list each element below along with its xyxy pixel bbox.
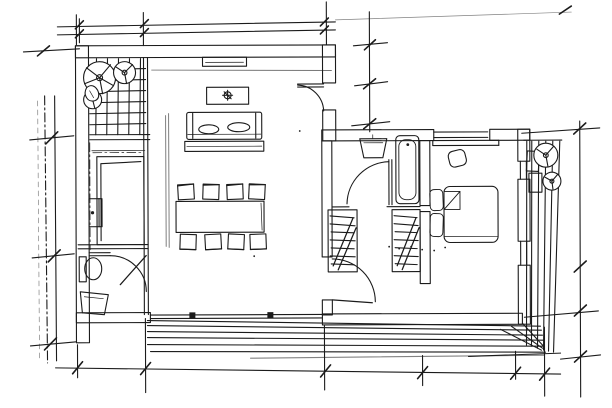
wall-segment [75,45,335,58]
wall-segment [76,313,150,323]
cushion [228,123,250,132]
wall-segment [323,110,336,141]
living-room-door [298,84,324,111]
desk [433,140,499,145]
bathtub [396,136,419,204]
sofa-rug [185,141,264,151]
bed [430,186,499,242]
wc-door [110,256,146,292]
wall-segment [518,265,530,324]
wall-segment [322,45,335,83]
desk-chair [447,149,467,169]
pillow [430,213,444,236]
dimension-lines-left [23,15,80,363]
dining-chairs [178,184,267,250]
kitchen-appliance [89,199,102,227]
dining-chair [205,234,222,250]
wc-sink [80,292,108,315]
dining-table [176,201,264,232]
dining-chair [180,234,196,249]
dining-chair [250,234,267,250]
wall-segment [420,212,430,284]
sofa [187,112,262,139]
wall-segment [322,300,332,315]
wall-segment [518,179,530,241]
dining-chair [203,184,219,199]
wardrobe-right [392,210,420,272]
cushion [199,125,219,134]
coffee-table [207,87,249,104]
wall-segment [420,141,430,206]
wc-toilet [79,257,102,282]
stipple-dots [253,130,446,257]
floor-plan-canvas [0,0,612,408]
sideboard [202,57,246,66]
sliding-glass-door [150,312,322,319]
bathroom-sink [360,135,387,158]
pillow [430,189,444,210]
closet-door [332,259,375,303]
dining-chair [178,184,195,200]
plant-icon [223,90,233,100]
dining-chair [228,234,245,250]
window-lines [152,69,527,267]
kitchen-counter [90,143,145,250]
dining-chair [227,184,244,200]
wall-segment [490,129,530,140]
planter [529,173,542,192]
wall-segment [518,129,530,161]
bathroom-door [347,160,392,205]
dining-chair [249,184,266,200]
